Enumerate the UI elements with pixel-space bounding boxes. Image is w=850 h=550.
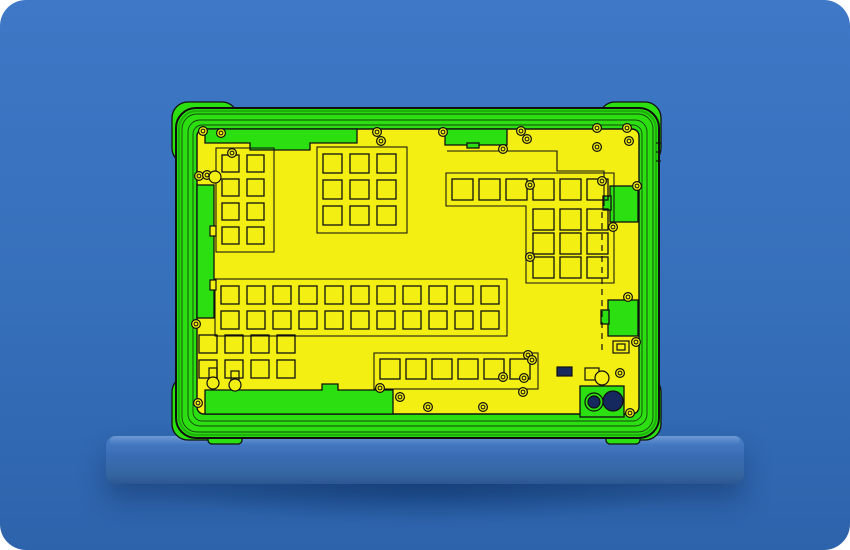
screw-head bbox=[195, 172, 204, 181]
camera-lens-right bbox=[603, 391, 623, 411]
stage bbox=[0, 0, 850, 550]
screw bbox=[609, 223, 618, 232]
screw-head bbox=[626, 409, 635, 418]
screw-head bbox=[377, 137, 386, 146]
screw bbox=[439, 128, 448, 137]
screw-head bbox=[624, 293, 633, 302]
top-tab-right-notch bbox=[467, 143, 479, 148]
screw-head bbox=[526, 181, 535, 190]
render-scene bbox=[0, 0, 850, 550]
screw-head bbox=[499, 373, 508, 382]
screw bbox=[199, 127, 208, 136]
mic-hole bbox=[229, 379, 241, 391]
right-port-lower bbox=[608, 300, 638, 336]
left-rail bbox=[197, 185, 214, 318]
screw bbox=[396, 393, 405, 402]
screw bbox=[624, 293, 633, 302]
screw bbox=[373, 128, 382, 137]
screw bbox=[633, 182, 642, 191]
screw bbox=[626, 409, 635, 418]
rail-notch bbox=[210, 280, 216, 290]
rail-notch bbox=[210, 226, 216, 236]
screw-head bbox=[593, 124, 602, 133]
screw-head bbox=[499, 145, 508, 154]
screw bbox=[194, 399, 203, 408]
screw bbox=[517, 127, 526, 136]
screw bbox=[228, 149, 237, 158]
screw bbox=[376, 384, 385, 393]
screw bbox=[520, 374, 529, 383]
screw-head bbox=[633, 182, 642, 191]
screw bbox=[526, 181, 535, 190]
screw-head bbox=[479, 403, 488, 412]
screw-head bbox=[520, 374, 529, 383]
screw bbox=[217, 129, 226, 138]
screw-head bbox=[632, 338, 641, 347]
screw-head bbox=[228, 149, 237, 158]
screw-head bbox=[523, 135, 532, 144]
alignment-hole bbox=[209, 171, 221, 183]
screw-head bbox=[424, 403, 433, 412]
screw bbox=[526, 253, 535, 262]
screw bbox=[479, 403, 488, 412]
screw bbox=[523, 135, 532, 144]
screw-head bbox=[192, 320, 201, 329]
flash-ring bbox=[595, 371, 609, 385]
screw bbox=[593, 124, 602, 133]
screw bbox=[625, 137, 634, 146]
screw-head bbox=[625, 137, 634, 146]
screw-head bbox=[519, 388, 528, 397]
screw-head bbox=[593, 143, 602, 152]
screw-head bbox=[616, 369, 625, 378]
screw bbox=[499, 145, 508, 154]
screw-head bbox=[217, 129, 226, 138]
screw bbox=[192, 320, 201, 329]
screw-head bbox=[373, 128, 382, 137]
screw bbox=[632, 338, 641, 347]
tablet-rear-shell bbox=[0, 0, 850, 550]
screw bbox=[528, 356, 537, 365]
screw-head bbox=[194, 399, 203, 408]
screw bbox=[593, 143, 602, 152]
screw bbox=[623, 124, 632, 133]
screw bbox=[377, 137, 386, 146]
screw-head bbox=[396, 393, 405, 402]
screw-head bbox=[376, 384, 385, 393]
screw-head bbox=[517, 127, 526, 136]
screw bbox=[616, 369, 625, 378]
screw bbox=[195, 172, 204, 181]
camera-lens-left bbox=[588, 396, 600, 408]
screw-head bbox=[526, 253, 535, 262]
screw bbox=[499, 373, 508, 382]
screw-head bbox=[598, 177, 607, 186]
screw-head bbox=[199, 127, 208, 136]
connector-chip bbox=[557, 367, 572, 376]
screw bbox=[519, 388, 528, 397]
screw bbox=[598, 177, 607, 186]
mic-hole bbox=[207, 377, 219, 389]
screw bbox=[424, 403, 433, 412]
screw-head bbox=[623, 124, 632, 133]
screw-head bbox=[609, 223, 618, 232]
screw-head bbox=[528, 356, 537, 365]
screw-head bbox=[439, 128, 448, 137]
